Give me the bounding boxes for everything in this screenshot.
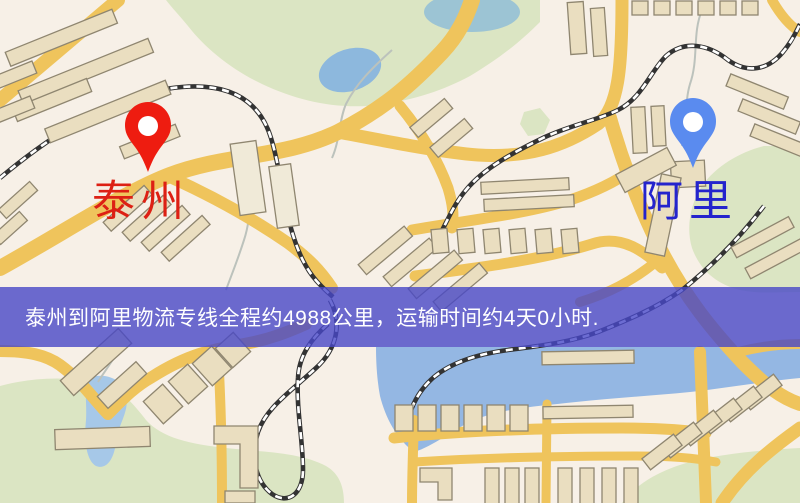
origin-pin-hole	[138, 116, 158, 136]
route-info-banner: 泰州到阿里物流专线全程约4988公里，运输时间约4天0小时.	[0, 287, 800, 347]
map-view: 泰州 阿里 泰州到阿里物流专线全程约4988公里，运输时间约4天0小时.	[0, 0, 800, 503]
route-info-text: 泰州到阿里物流专线全程约4988公里，运输时间约4天0小时.	[25, 302, 599, 332]
map-background	[0, 0, 800, 503]
destination-marker[interactable]	[667, 96, 719, 168]
origin-label: 泰州	[92, 181, 190, 224]
map-pin-icon	[670, 98, 716, 168]
destination-label: 阿里	[640, 181, 738, 224]
origin-pin-shape	[125, 102, 171, 172]
destination-pin-hole	[683, 112, 703, 132]
map-pin-icon	[125, 102, 171, 172]
destination-pin-shape	[670, 98, 716, 168]
origin-marker[interactable]	[122, 100, 174, 172]
